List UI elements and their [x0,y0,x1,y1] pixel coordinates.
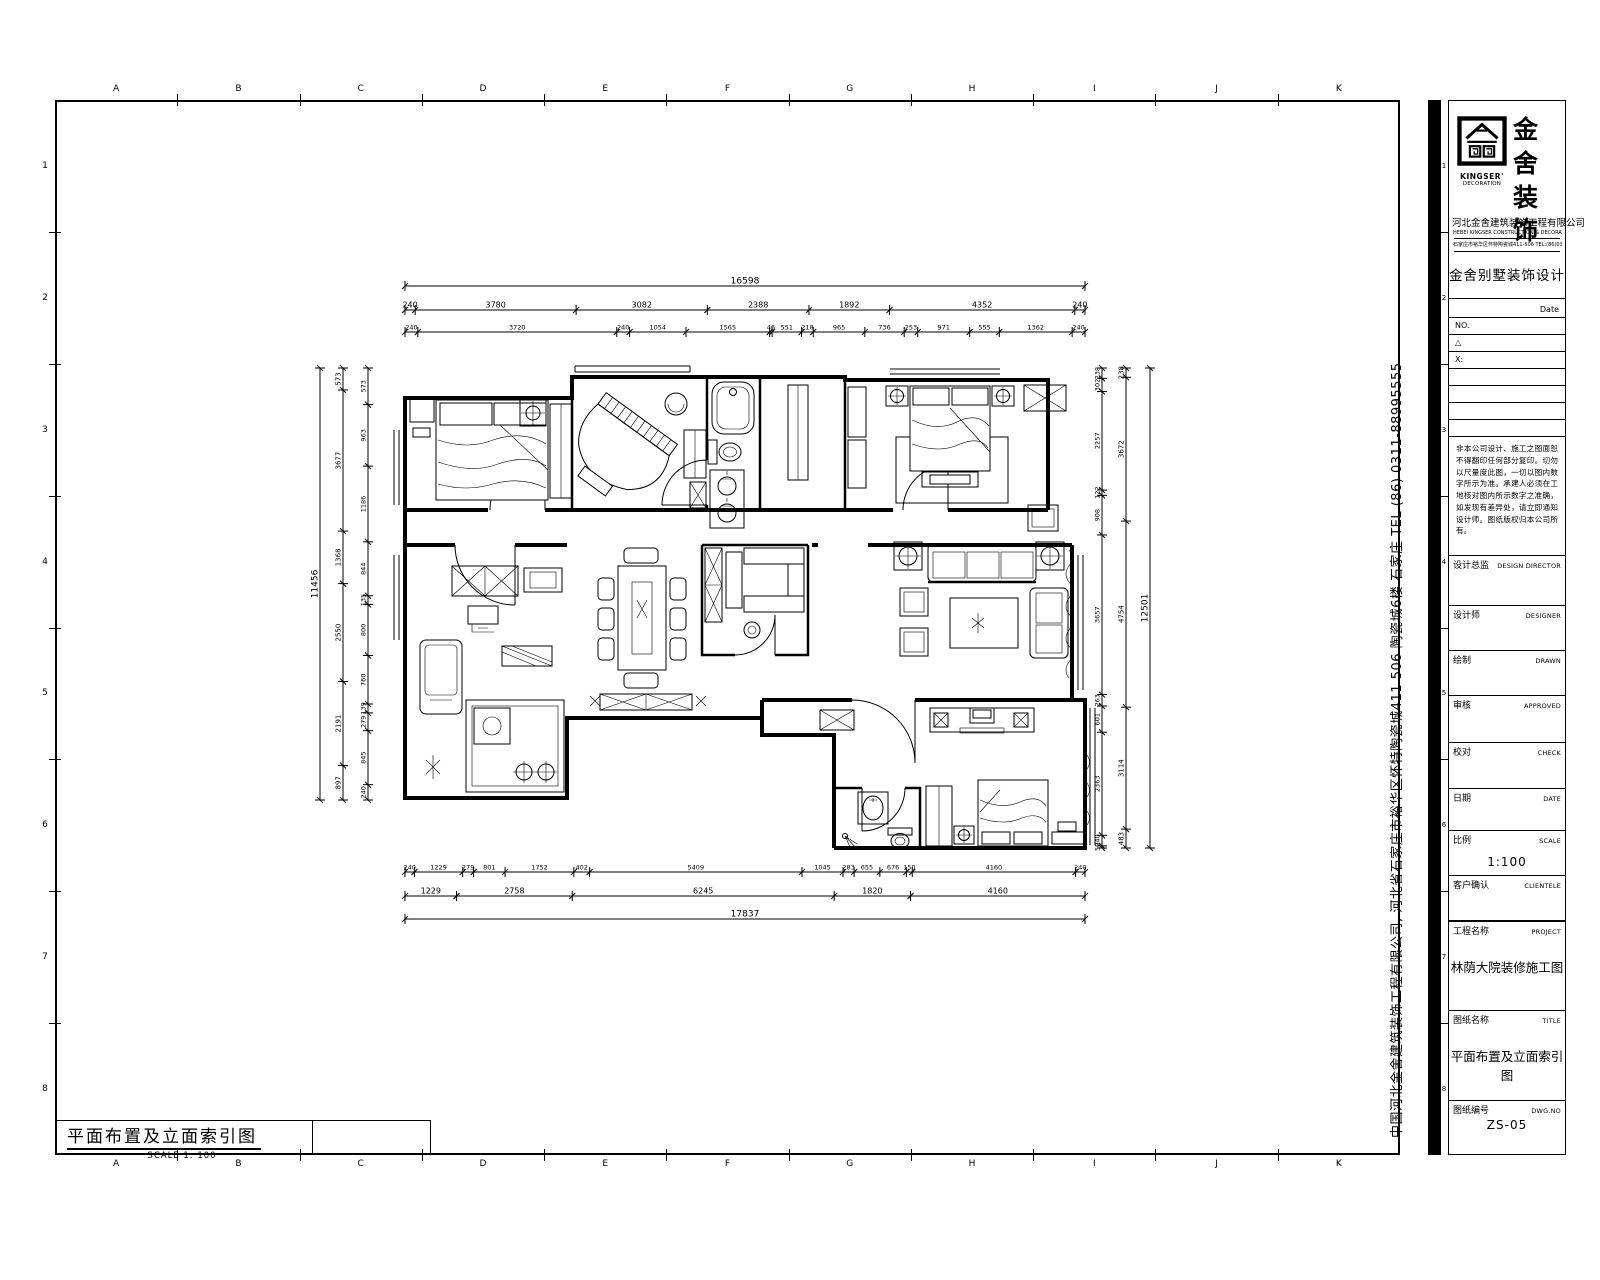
grid-label: 3 [1442,426,1446,434]
chair-icon [670,608,686,630]
double-sink-icon [710,470,744,528]
toilet-icon [708,440,741,464]
svg-text:1054: 1054 [650,324,667,332]
svg-text:573: 573 [360,380,368,392]
brand-en-line2: DECORATION [1456,181,1508,187]
grid-label: 2 [1442,294,1446,302]
field-scale: 比例SCALE 1:100 [1449,830,1565,875]
svg-text:908: 908 [1094,509,1102,521]
ensuite-bath [843,792,913,849]
drawing-label: 平面布置及立面索引图 SCALE 1: 100 [57,1120,313,1153]
chair-icon [670,638,686,660]
svg-text:1045: 1045 [814,864,831,872]
svg-text:4160: 4160 [988,887,1008,896]
bedroom-bottomright [820,708,1086,846]
grid-tick [1437,232,1448,233]
svg-text:17837: 17837 [731,910,760,920]
company-strip-vertical-text: 中国河北金舍建筑装饰工程有限公司, 河北省石家庄市裕华区怀特陶瓷城411 506… [1386,113,1405,1138]
scale-value: 1:100 [1449,855,1565,869]
bench-icon [1052,832,1086,844]
drawing-label-extension [313,1120,431,1153]
svg-text:1892: 1892 [839,301,859,310]
chair-icon [624,673,658,688]
title-block: KINGSER' DECORATION 金舍 装饰 河北金舍建筑装饰工程有限公司… [1448,100,1566,1155]
chair-icon [598,578,614,600]
brand-cn: 金舍 装饰 [1513,113,1565,248]
field-drawn: 绘制DRAWN [1449,650,1565,695]
project-name: 林荫大院装修施工图 [1449,957,1565,976]
brand-en-line1: KINGSER' [1456,172,1508,181]
living-room [894,542,1068,658]
brand-area: KINGSER' DECORATION 金舍 装饰 [1449,101,1565,213]
svg-text:845: 845 [360,751,368,763]
grid-tick [1437,496,1448,497]
svg-text:1229: 1229 [430,864,447,872]
blank-row [1449,369,1565,386]
svg-text:283: 283 [842,864,854,872]
stool-icon [744,622,760,638]
svg-text:1565: 1565 [720,324,737,332]
svg-text:12501: 12501 [1141,594,1151,623]
svg-text:483: 483 [1118,832,1126,845]
field-date: 日期DATE [1449,788,1565,830]
fridge-icon [420,640,462,714]
bed-icon [978,780,1048,846]
grid-label: 8 [1442,1085,1446,1093]
field-check: 校对CHECK [1449,742,1565,788]
sheet-title: 平面布置及立面索引图 [1449,1046,1565,1084]
blank-row [1449,386,1565,403]
svg-text:240: 240 [1072,324,1084,332]
svg-text:16598: 16598 [731,277,760,287]
svg-text:1186: 1186 [360,496,368,513]
grid-tick [1437,759,1448,760]
svg-text:3082: 3082 [632,301,652,310]
bathroom-top [708,382,754,528]
svg-text:279: 279 [360,716,368,728]
piano-room [555,392,706,515]
bed-icon [910,386,990,471]
field-designer: 设计师DESIGNER [1449,605,1565,650]
grid-label: 1 [1442,162,1446,170]
svg-text:573: 573 [335,372,343,385]
svg-text:2257: 2257 [1094,433,1102,450]
svg-text:1362: 1362 [1027,324,1044,332]
floor-drain-icon [426,755,440,779]
grid-label: 7 [1442,953,1446,961]
svg-text:3677: 3677 [335,452,343,470]
blank-row [1449,420,1565,437]
svg-text:5409: 5409 [688,864,705,872]
svg-text:555: 555 [978,324,990,332]
svg-text:655: 655 [861,864,873,872]
svg-text:11456: 11456 [311,569,321,598]
svg-text:760: 760 [360,674,368,686]
walkin-closet [705,548,804,638]
blank-row [1449,403,1565,420]
svg-text:551: 551 [781,324,793,332]
svg-text:1752: 1752 [531,864,548,872]
chair-icon [670,578,686,600]
svg-text:801: 801 [483,864,495,872]
svg-text:218: 218 [801,324,813,332]
svg-text:963: 963 [360,429,368,441]
svg-text:601: 601 [1094,713,1102,725]
copyright-notice: 非本公司设计、施工之图面恕不得翻印任何部分复印。切勿以尺量度此图，一切以图内数字… [1449,437,1565,555]
rev-row: △ [1449,335,1565,352]
no-row: NO. [1449,318,1565,335]
grid-tick [1437,364,1448,365]
hall-closet [788,385,866,488]
stove-counter-icon [466,700,564,792]
svg-text:3780: 3780 [485,301,505,310]
svg-text:897: 897 [335,776,343,789]
svg-text:1229: 1229 [421,887,441,896]
bedroom-topleft [410,398,572,500]
field-project: 工程名称PROJECT 林荫大院装修施工图 [1449,920,1565,1010]
svg-text:122: 122 [1094,486,1102,498]
svg-text:240: 240 [617,324,629,332]
svg-text:800: 800 [360,624,368,636]
svg-text:402: 402 [576,864,588,872]
chair-icon [624,548,658,563]
table-icon [468,606,498,632]
svg-text:3114: 3114 [1118,759,1126,777]
field-title: 图纸名称TITLE 平面布置及立面索引图 [1449,1010,1565,1100]
svg-text:2550: 2550 [335,624,343,642]
grid-tick [1437,628,1448,629]
svg-text:240: 240 [405,324,417,332]
svg-text:1820: 1820 [862,887,882,896]
svg-text:240: 240 [360,786,368,798]
grid-label: 4 [1442,558,1446,566]
grid-tick [1437,891,1448,892]
drawing-label-scale: SCALE 1: 100 [67,1151,297,1161]
desk-icon [930,708,1034,733]
field-design-director: 设计总监DESIGN DIRECTOR [1449,555,1565,605]
chair-icon [598,608,614,630]
svg-text:2191: 2191 [335,715,343,733]
svg-text:4352: 4352 [972,301,992,310]
plant-icon [972,613,984,633]
field-approved: 审核APPROVED [1449,695,1565,742]
design-title: 金舍别墅装饰设计 [1449,254,1565,298]
svg-text:2363: 2363 [1094,776,1102,793]
x-row: X: [1449,352,1565,369]
svg-text:3672: 3672 [1118,440,1126,458]
svg-text:2758: 2758 [504,887,524,896]
svg-text:253: 253 [905,324,917,332]
svg-text:279: 279 [462,864,474,872]
svg-text:4754: 4754 [1118,605,1126,623]
floor-plan-canvas: 1659824037803082238818924352240240372024… [0,0,1600,1280]
grid-label: 6 [1442,821,1446,829]
sofa-3seat-icon [928,544,1036,582]
dining-area [590,548,706,710]
svg-text:676: 676 [887,864,899,872]
svg-text:971: 971 [937,324,949,332]
toilet-icon [888,828,912,849]
svg-text:844: 844 [360,563,368,575]
kingser-logo-icon [1456,115,1508,167]
drawing-sheet: AABBCCDDEEFFGGHHIIJJKK12345678 [0,0,1600,1280]
grid-tick [1437,1023,1448,1024]
svg-text:6245: 6245 [693,887,713,896]
grid-label: 5 [1442,689,1446,697]
svg-text:3657: 3657 [1094,606,1102,623]
field-clientele: 客户确认CLIENTELE [1449,875,1565,920]
date-row: Date [1449,298,1565,318]
bathtub-icon [712,382,754,434]
svg-text:965: 965 [833,324,845,332]
svg-text:4160: 4160 [986,864,1003,872]
sofa-2seat-icon [1030,588,1068,658]
dining-table-icon [618,566,666,670]
sideboard-icon [590,694,706,710]
svg-text:736: 736 [878,324,890,332]
nightstand-icon [410,398,434,422]
svg-text:3720: 3720 [509,324,526,332]
chair-icon [598,638,614,660]
drawing-label-title: 平面布置及立面索引图 [67,1121,261,1150]
svg-text:1368: 1368 [335,548,343,566]
rug-icon [950,598,1018,648]
field-dwgno: 图纸编号DWG.NO ZS-05 [1449,1100,1565,1133]
dwg-number: ZS-05 [1449,1118,1565,1132]
svg-text:2388: 2388 [748,301,768,310]
svg-text:238: 238 [1094,367,1102,379]
kitchen [420,566,564,792]
